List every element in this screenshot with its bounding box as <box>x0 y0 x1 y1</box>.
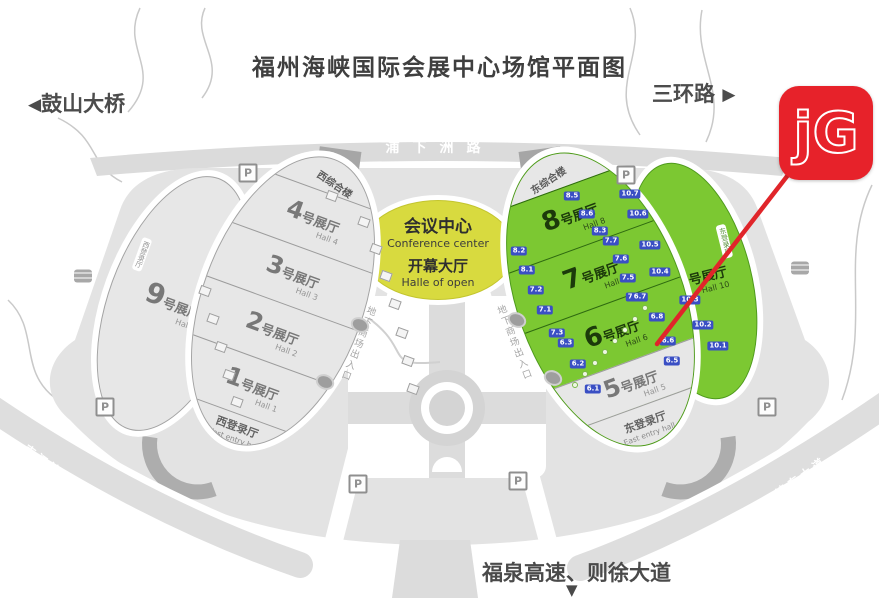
south-arrow-icon: ▼ <box>566 581 578 599</box>
south-exit-road <box>392 540 478 598</box>
direction-east: 三环路 ▶ <box>652 78 735 108</box>
jg-logo-letters: jG <box>779 86 873 180</box>
north-road-label: 浦下洲路 <box>0 137 879 157</box>
conference-center-en: Conference center <box>387 237 489 250</box>
jg-logo: jG <box>779 86 873 180</box>
east-arrow-icon: ▶ <box>722 85 735 105</box>
opening-hall-zh: 开幕大厅 <box>408 255 468 276</box>
opening-hall-en: Halle of open <box>402 276 475 289</box>
svg-text:jG: jG <box>791 101 858 166</box>
direction-west: ◀鼓山大桥 <box>28 88 125 118</box>
venue-map: 福州海峡国际会展中心场馆平面图 ◀鼓山大桥 三环路 ▶ 福泉高速、则徐大道 ▼ … <box>0 0 879 613</box>
conference-center-zh: 会议中心 <box>404 212 472 237</box>
conference-center: 会议中心 Conference center 开幕大厅 Halle of ope… <box>361 200 515 300</box>
map-title: 福州海峡国际会展中心场馆平面图 <box>0 48 879 82</box>
west-arrow-icon: ◀ <box>28 95 41 115</box>
